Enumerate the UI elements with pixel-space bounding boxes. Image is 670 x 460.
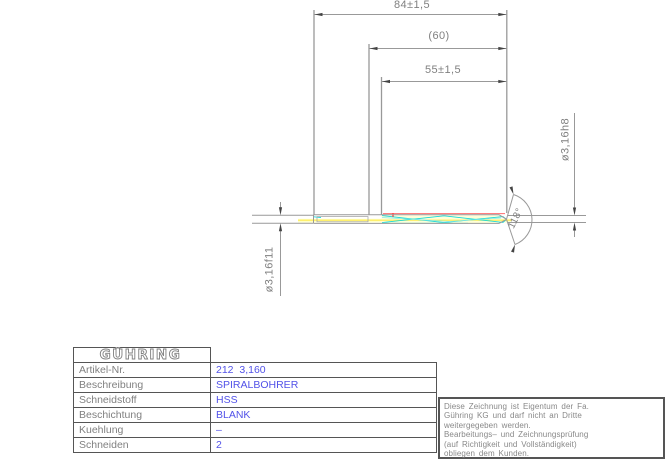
spec-table: GÜHRING Artikel-Nr. 212 3,160 Beschreibu… (73, 347, 437, 453)
table-row: Kuehlung – (74, 423, 437, 438)
row-label: Schneiden (74, 438, 211, 453)
row-label: Beschichtung (74, 408, 211, 423)
guehring-logo-text: GÜHRING (100, 348, 182, 363)
row-value: – (211, 423, 437, 438)
table-row-logo: GÜHRING (74, 348, 437, 363)
row-value: HSS (211, 393, 437, 408)
table-row: Schneiden 2 (74, 438, 437, 453)
note-line: Diese Zeichnung ist Eigentum der Fa. (444, 402, 659, 411)
shank-diameter-dimension (252, 202, 313, 296)
row-label: Beschreibung (74, 378, 211, 393)
row-value: 212 3,160 (211, 363, 437, 378)
ownership-note: Diese Zeichnung ist Eigentum der Fa. Güh… (438, 397, 665, 459)
row-label: Artikel-Nr. (74, 363, 211, 378)
guehring-logo: GÜHRING (74, 348, 209, 363)
logo-cell: GÜHRING (74, 348, 211, 363)
note-line: obliegen dem Kunden. (444, 449, 659, 458)
dim-overall-length: 84±1,5 (372, 0, 452, 11)
note-line: Bearbeitungs– und Zeichnungsprüfung (444, 430, 659, 439)
dim-tip-diameter: ø3,16h8 (561, 110, 572, 170)
row-value: BLANK (211, 408, 437, 423)
dim-shank-ref-length: (60) (399, 31, 479, 42)
table-row: Schneidstoff HSS (74, 393, 437, 408)
tip-diameter-arrows (573, 208, 576, 231)
technical-drawing (0, 0, 670, 340)
table-row: Beschreibung SPIRALBOHRER (74, 378, 437, 393)
table-row: Beschichtung BLANK (74, 408, 437, 423)
logo-row-spacer (211, 348, 437, 363)
note-line: Gühring KG und darf nicht an Dritte (444, 411, 659, 420)
shank-diameter-arrows (279, 207, 282, 231)
dim-flute-length: 55±1,5 (403, 65, 483, 76)
table-row: Artikel-Nr. 212 3,160 (74, 363, 437, 378)
row-value: 2 (211, 438, 437, 453)
dim-shank-diameter: ø3,16f11 (265, 240, 276, 300)
drawing-sheet: 84±1,5 (60) 55±1,5 ø3,16h8 ø3,16f11 118°… (0, 0, 670, 460)
row-label: Kuehlung (74, 423, 211, 438)
note-line: (auf Richtigkeit und Vollständigkeit) (444, 440, 659, 449)
note-line: weitergegeben werden. (444, 421, 659, 430)
row-value: SPIRALBOHRER (211, 378, 437, 393)
row-label: Schneidstoff (74, 393, 211, 408)
